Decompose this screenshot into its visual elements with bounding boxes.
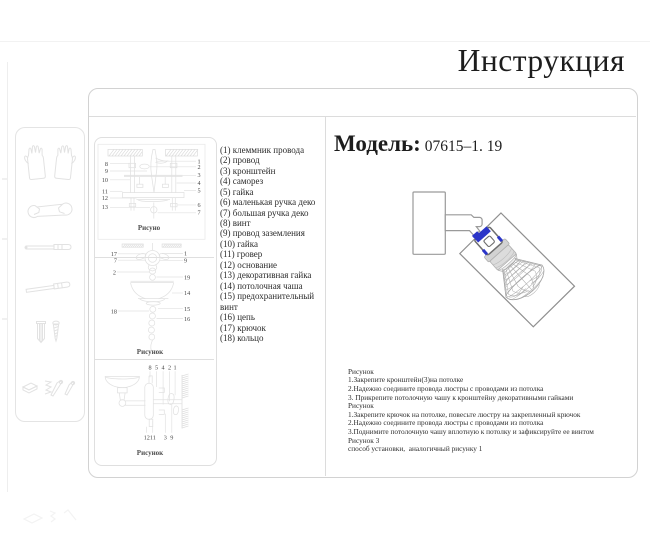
svg-text:11: 11 xyxy=(150,434,156,441)
svg-text:8: 8 xyxy=(105,161,108,168)
svg-text:12: 12 xyxy=(102,195,108,202)
svg-text:7: 7 xyxy=(114,258,117,265)
svg-text:3: 3 xyxy=(198,172,201,179)
svg-text:14: 14 xyxy=(184,290,190,297)
svg-text:4: 4 xyxy=(162,365,165,372)
svg-text:13: 13 xyxy=(102,204,108,211)
svg-text:10: 10 xyxy=(102,177,108,184)
svg-text:9: 9 xyxy=(170,434,173,441)
svg-text:1: 1 xyxy=(174,365,177,372)
svg-text:5: 5 xyxy=(155,365,158,372)
svg-text:16: 16 xyxy=(184,316,190,323)
svg-text:2: 2 xyxy=(198,164,201,171)
svg-text:4: 4 xyxy=(198,180,201,187)
svg-text:6: 6 xyxy=(198,202,201,209)
svg-text:19: 19 xyxy=(184,274,190,281)
svg-text:2: 2 xyxy=(113,269,116,276)
svg-text:7: 7 xyxy=(198,210,201,217)
svg-text:2: 2 xyxy=(168,365,171,372)
svg-text:3: 3 xyxy=(164,434,167,441)
svg-text:8: 8 xyxy=(148,365,151,372)
svg-text:18: 18 xyxy=(111,308,117,315)
svg-text:9: 9 xyxy=(184,257,187,264)
svg-text:5: 5 xyxy=(198,187,201,194)
svg-text:9: 9 xyxy=(105,168,108,175)
svg-text:15: 15 xyxy=(184,306,190,313)
